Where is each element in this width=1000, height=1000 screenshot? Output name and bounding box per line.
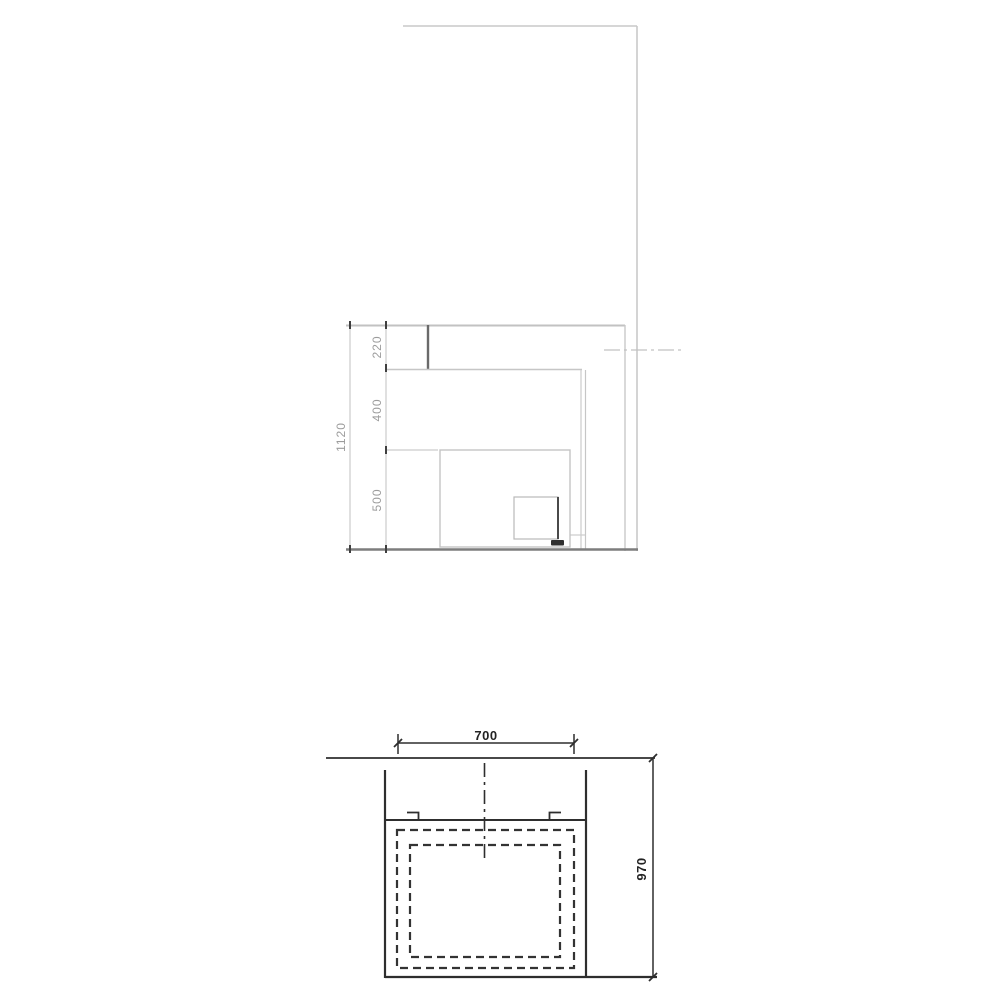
drawing-canvas: 1120 220 400 500 700	[0, 0, 1000, 1000]
section-dimensions: 1120 220 400 500	[334, 321, 386, 553]
plan-width-dimension: 700	[394, 728, 578, 754]
bracket-right	[550, 813, 562, 820]
dim-label-segment-top: 220	[370, 335, 384, 358]
liner-inner-dashed	[410, 845, 560, 957]
dim-label-depth: 970	[634, 857, 649, 880]
vent-box-outline	[514, 497, 558, 539]
plan-depth-dimension: 970	[634, 754, 657, 981]
small-print-mark	[551, 540, 564, 546]
fireplace-technical-drawing: 1120 220 400 500 700	[0, 0, 1000, 1000]
dim-label-width: 700	[474, 728, 497, 743]
dim-label-segment-bottom: 500	[370, 488, 384, 511]
section-view: 1120 220 400 500	[334, 26, 684, 553]
firebox-outline	[440, 450, 570, 547]
dim-label-segment-middle: 400	[370, 398, 384, 421]
plan-view: 700 970	[326, 728, 657, 981]
dim-label-total-height: 1120	[334, 422, 348, 452]
liner-outer-dashed	[397, 830, 574, 968]
bracket-left	[407, 813, 419, 820]
